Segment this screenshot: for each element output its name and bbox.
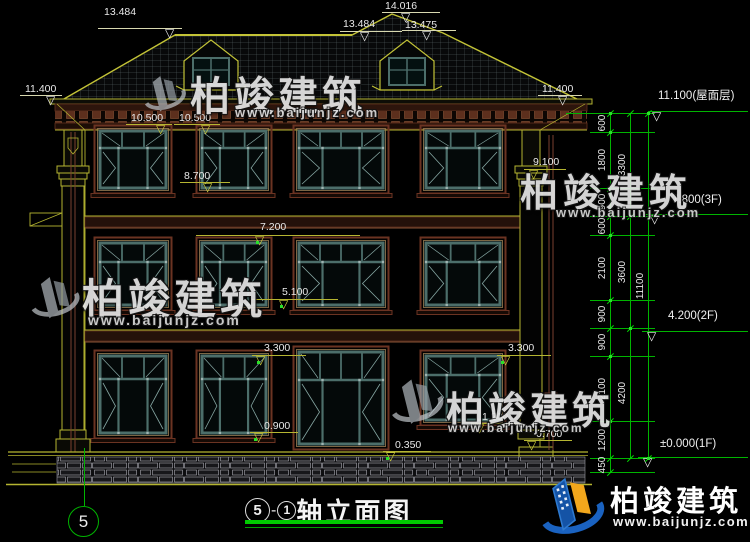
- brand-url: www.baijunjz.com: [613, 514, 749, 529]
- elevation-flag-triangle-icon: ▽: [360, 31, 369, 41]
- grip-point: [257, 361, 260, 364]
- elevation-flag-label: 13.484: [104, 6, 136, 18]
- dim-label: 3600: [616, 254, 630, 290]
- watermark-logo-icon: [386, 372, 446, 437]
- brand-footer: 柏竣建筑 www.baijunjz.com: [534, 472, 750, 542]
- elevation-flag-label: 4.200(2F): [668, 310, 718, 322]
- belt-course-2f: [85, 330, 540, 342]
- elevation-flag-triangle-icon: ▽: [652, 111, 661, 121]
- elevation-flag-line: [638, 457, 748, 458]
- dim-label: 2100: [596, 250, 610, 286]
- elevation-flag-triangle-icon: ▽: [46, 95, 55, 105]
- watermark-url: www.baijunjz.com: [448, 421, 584, 435]
- watermark-logo-icon: [26, 270, 82, 331]
- brand-logo-icon: [534, 472, 608, 542]
- elevation-flag-triangle-icon: ▽: [203, 182, 212, 192]
- dim-label: 4200: [616, 375, 630, 411]
- belt-course-3f: [85, 216, 540, 228]
- window: [290, 126, 392, 198]
- grip-point: [609, 355, 612, 358]
- title-dash: -: [271, 502, 276, 519]
- title-underline-thin: [245, 527, 443, 528]
- window: [91, 126, 175, 198]
- elevation-flag-label: 11.100(屋面层): [658, 87, 734, 103]
- grip-point: [280, 305, 283, 308]
- elevation-flag-line: [340, 31, 402, 32]
- grip-point: [647, 457, 650, 460]
- axis-grid-bubble: 5: [68, 506, 99, 537]
- ground-plinth: [6, 452, 592, 485]
- grip-point: [629, 327, 632, 330]
- elevation-flag-triangle-icon: ▽: [527, 440, 536, 450]
- elevation-flag-line: [174, 124, 220, 125]
- elevation-flag-label: 7.200: [260, 221, 286, 233]
- grip-point: [609, 234, 612, 237]
- elevation-flag-line: [648, 111, 748, 112]
- elevation-flag-triangle-icon: ▽: [156, 124, 165, 134]
- watermark-url: www.baijunjz.com: [556, 205, 700, 220]
- elevation-flag-triangle-icon: ▽: [647, 331, 656, 341]
- grip-point: [254, 438, 257, 441]
- elevation-flag-line: [196, 235, 360, 236]
- window: [417, 238, 509, 315]
- elevation-flag-triangle-icon: ▽: [558, 95, 567, 105]
- grip-point: [501, 361, 504, 364]
- dim-label: 11100: [634, 268, 648, 304]
- elevation-flag-triangle-icon: ▽: [165, 28, 174, 38]
- elevation-flag-line: [20, 95, 62, 96]
- watermark-url: www.baijunjz.com: [235, 105, 379, 120]
- elevation-flag-label: 3.300: [264, 342, 290, 354]
- watermark-url: www.baijunjz.com: [88, 312, 241, 328]
- grip-point: [609, 131, 612, 134]
- title-underline: [245, 520, 443, 524]
- elevation-flag-label: 0.350: [395, 439, 421, 451]
- elevation-flag-label: 0.900: [264, 420, 290, 432]
- grip-point: [647, 112, 650, 115]
- window: [294, 347, 389, 450]
- window: [290, 238, 392, 315]
- window: [91, 351, 175, 443]
- grip-point: [256, 241, 259, 244]
- elevation-flag-triangle-icon: ▽: [201, 124, 210, 134]
- drawing-title: 5-1轴立面图: [245, 492, 412, 529]
- elevation-flag-line: [642, 331, 748, 332]
- cad-elevation-canvas: 柏竣建筑 www.baijunjz.com 柏竣建筑 www.baijunjz.…: [0, 0, 750, 542]
- window: [417, 126, 509, 198]
- elevation-flag-triangle-icon: ▽: [422, 30, 431, 40]
- elevation-flag-line: [382, 12, 440, 13]
- elevation-flag-label: 3.300: [508, 342, 534, 354]
- grip-point: [609, 299, 612, 302]
- axis-grid-leader-line: [84, 448, 85, 506]
- watermark-logo-icon: [140, 70, 188, 123]
- axis-circle-end: 1: [277, 501, 296, 520]
- grip-point: [386, 457, 389, 460]
- elevation-flag-label: ±0.000(1F): [660, 438, 716, 450]
- grip-point: [609, 112, 612, 115]
